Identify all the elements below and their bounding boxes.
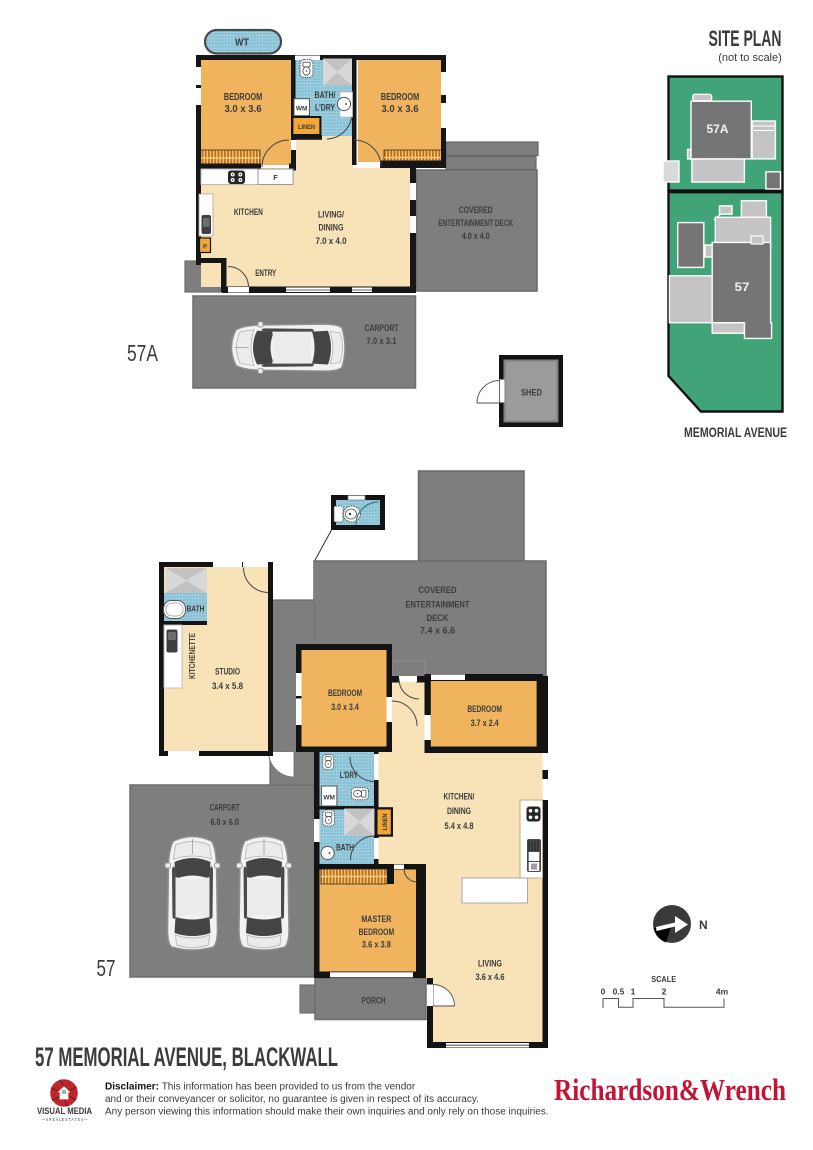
svg-text:BEDROOM: BEDROOM xyxy=(224,92,263,103)
svg-text:DECK: DECK xyxy=(427,613,449,624)
svg-text:3.0 x 3.6: 3.0 x 3.6 xyxy=(382,104,419,115)
svg-text:LIVING/: LIVING/ xyxy=(318,210,344,221)
svg-text:— 4 R E A L E S T A T E 4 —: — 4 R E A L E S T A T E 4 — xyxy=(42,1117,88,1122)
svg-text:57: 57 xyxy=(735,280,750,294)
svg-text:2: 2 xyxy=(662,987,667,997)
svg-text:BATH/: BATH/ xyxy=(315,90,336,101)
svg-text:3.0 x 3.4: 3.0 x 3.4 xyxy=(331,702,359,713)
svg-text:F: F xyxy=(273,173,278,182)
svg-text:WM: WM xyxy=(323,795,335,802)
svg-text:L'DRY: L'DRY xyxy=(315,103,335,114)
svg-text:WT: WT xyxy=(235,38,249,49)
svg-text:VISUAL MEDIA: VISUAL MEDIA xyxy=(37,1106,92,1116)
svg-text:3.6 x 3.8: 3.6 x 3.8 xyxy=(362,940,391,951)
svg-text:6.0 x 6.0: 6.0 x 6.0 xyxy=(210,817,239,828)
svg-text:and or their conveyancer or so: and or their conveyancer or solicitor, n… xyxy=(105,1094,479,1105)
svg-text:3.4 x 5.8: 3.4 x 5.8 xyxy=(212,681,243,692)
svg-text:(not to scale): (not to scale) xyxy=(718,52,782,64)
svg-text:CARPORT: CARPORT xyxy=(210,803,240,814)
svg-text:WM: WM xyxy=(296,106,308,113)
svg-text:N: N xyxy=(699,918,708,932)
svg-text:1: 1 xyxy=(631,987,636,997)
svg-text:5.4 x 4.8: 5.4 x 4.8 xyxy=(445,821,474,832)
svg-text:0.5: 0.5 xyxy=(613,987,625,997)
svg-text:LINEN: LINEN xyxy=(298,124,315,131)
svg-text:DINING: DINING xyxy=(319,223,344,234)
svg-text:4.0 x 4.0: 4.0 x 4.0 xyxy=(462,231,490,242)
svg-text:SHED: SHED xyxy=(521,388,542,398)
svg-text:ENTERTAINMENT DECK: ENTERTAINMENT DECK xyxy=(438,218,513,229)
svg-text:ENTERTAINMENT: ENTERTAINMENT xyxy=(406,600,470,611)
svg-text:COVERED: COVERED xyxy=(419,585,457,596)
svg-text:3.7 x 2.4: 3.7 x 2.4 xyxy=(471,718,500,729)
svg-text:P: P xyxy=(203,245,207,251)
svg-text:3.6 x 4.6: 3.6 x 4.6 xyxy=(476,972,505,983)
svg-text:3.0 x 3.6: 3.0 x 3.6 xyxy=(225,104,262,115)
svg-text:KITCHEN/: KITCHEN/ xyxy=(444,792,475,803)
svg-text:PORCH: PORCH xyxy=(362,996,386,1007)
svg-text:Disclaimer: This information h: Disclaimer: This information has been pr… xyxy=(105,1082,416,1093)
svg-text:BEDROOM: BEDROOM xyxy=(359,927,395,938)
svg-text:Any person viewing this inform: Any person viewing this information shou… xyxy=(105,1107,549,1118)
svg-text:57 MEMORIAL AVENUE, BLACKWALL: 57 MEMORIAL AVENUE, BLACKWALL xyxy=(35,1042,338,1072)
svg-text:SCALE: SCALE xyxy=(651,974,676,984)
svg-text:7.4 x 6.6: 7.4 x 6.6 xyxy=(420,626,455,637)
svg-text:57: 57 xyxy=(97,955,116,981)
svg-text:4m: 4m xyxy=(716,987,729,997)
svg-text:MEMORIAL AVENUE: MEMORIAL AVENUE xyxy=(684,425,787,440)
svg-text:LIVING: LIVING xyxy=(478,959,502,970)
svg-text:BEDROOM: BEDROOM xyxy=(467,704,502,715)
svg-text:CARPORT: CARPORT xyxy=(365,323,399,334)
svg-text:ENTRY: ENTRY xyxy=(255,268,276,278)
svg-text:KITCHENETTE: KITCHENETTE xyxy=(188,632,197,679)
svg-text:DINING: DINING xyxy=(447,806,471,817)
svg-text:0: 0 xyxy=(601,987,606,997)
svg-text:57A: 57A xyxy=(707,122,729,136)
svg-text:57A: 57A xyxy=(127,340,158,366)
svg-text:BATH: BATH xyxy=(187,604,205,614)
svg-text:LINEN: LINEN xyxy=(382,813,389,830)
svg-text:KITCHEN: KITCHEN xyxy=(234,207,263,218)
svg-text:7.0 x 3.1: 7.0 x 3.1 xyxy=(367,336,398,347)
svg-text:SITE PLAN: SITE PLAN xyxy=(709,26,782,51)
svg-text:COVERED: COVERED xyxy=(459,205,493,216)
svg-text:STUDIO: STUDIO xyxy=(215,667,240,678)
svg-text:7.0 x 4.0: 7.0 x 4.0 xyxy=(316,236,347,247)
svg-text:Richardson&Wrench: Richardson&Wrench xyxy=(554,1072,786,1107)
svg-text:MASTER: MASTER xyxy=(361,914,391,925)
svg-text:BEDROOM: BEDROOM xyxy=(328,688,362,699)
svg-text:BEDROOM: BEDROOM xyxy=(381,92,420,103)
